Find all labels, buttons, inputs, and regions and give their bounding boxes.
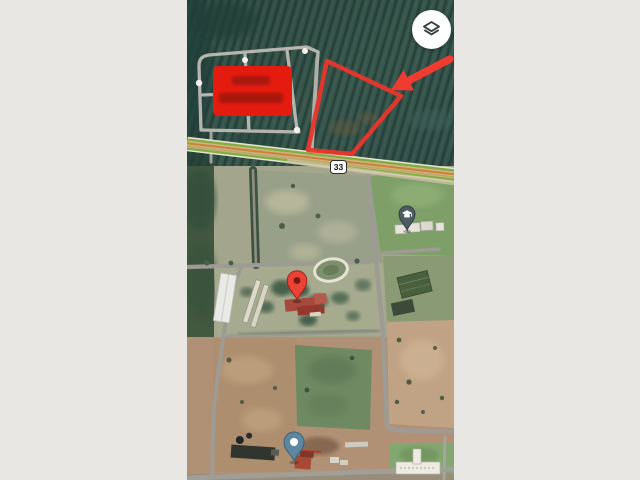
- satellite-imagery: [187, 0, 454, 480]
- highlighted-plot-rect: [213, 66, 292, 116]
- screen: 33: [0, 0, 640, 480]
- route-shield: 33: [330, 160, 347, 174]
- route-shield-label: 33: [334, 162, 343, 172]
- layers-button[interactable]: [412, 10, 451, 49]
- dot-pin-icon: [290, 438, 298, 446]
- map-canvas[interactable]: 33: [187, 0, 454, 480]
- map-pin-icon: [294, 277, 301, 284]
- layers-icon: [421, 19, 442, 40]
